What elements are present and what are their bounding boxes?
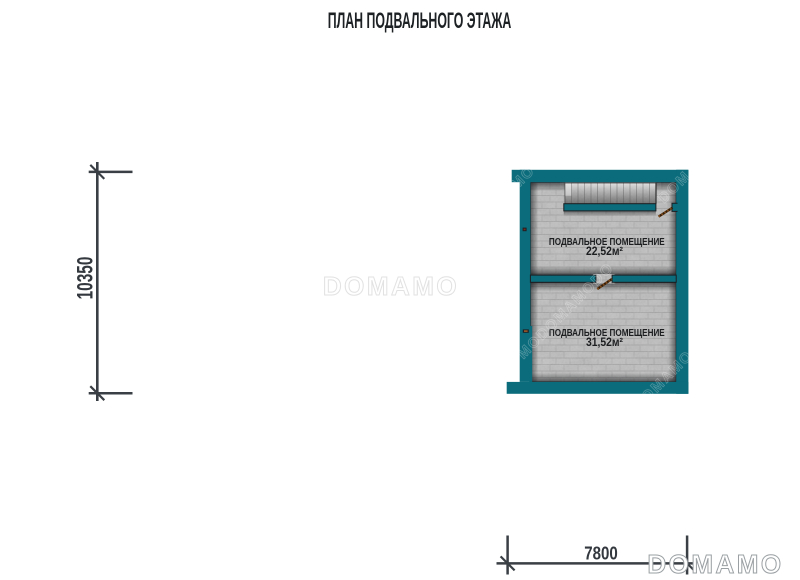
svg-text:DOMAMO: DOMAMO [647,549,783,579]
svg-text:10350: 10350 [74,257,98,300]
svg-text:7800: 7800 [584,543,617,564]
svg-text:22,52м²: 22,52м² [586,245,623,258]
svg-text:31,52м²: 31,52м² [586,336,623,349]
svg-text:DOMAMO: DOMAMO [323,271,459,301]
svg-text:ПЛАН ПОДВАЛЬНОГО ЭТАЖА: ПЛАН ПОДВАЛЬНОГО ЭТАЖА [328,8,512,33]
